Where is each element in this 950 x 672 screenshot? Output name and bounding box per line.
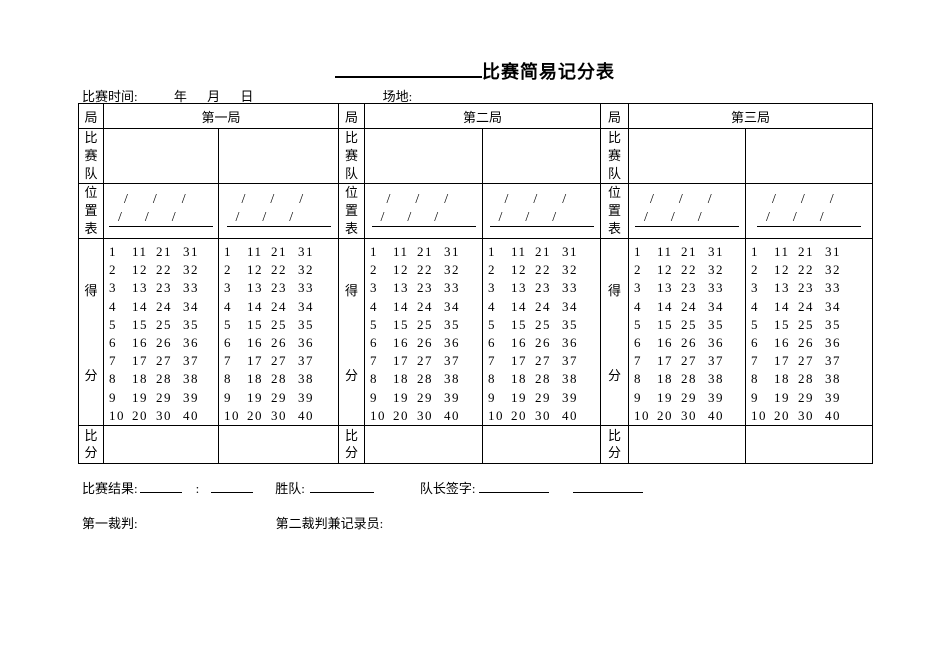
team-name-cell [629,129,746,184]
game-header-row: 局 第一局 局 第二局 局 第三局 [79,104,873,129]
final-score-cell [219,425,339,463]
referee-line: 第一裁判:第二裁判兼记录员: [82,513,383,532]
final-score-row: 比分 比分 比分 [79,425,873,463]
positions-row: 位置表 ////// ////// 位置表 ////// ////// 位置表 … [79,184,873,239]
game-2-title: 第二局 [365,104,601,129]
score-label: 得分 [79,239,104,426]
team-name-cell [746,129,873,184]
game-1-title: 第一局 [104,104,339,129]
team-name-cell [483,129,601,184]
title-text: 比赛简易记分表 [482,62,615,82]
score-table: 局 第一局 局 第二局 局 第三局 比赛队 比赛队 比赛队 位置表 //////… [78,103,873,464]
score-number-grid: 1112131212223231323334142434515253561626… [483,239,600,425]
captain-blank-2 [573,478,643,493]
result-blank-2 [211,478,253,493]
positions-label: 位置表 [79,184,104,239]
score-grid-cell: 1112131212223231323334142434515253561626… [483,239,601,426]
position-diagram: ////// [372,190,476,227]
positions-label: 位置表 [601,184,629,239]
position-diagram: ////// [227,190,331,227]
position-cell: ////// [365,184,483,239]
scoresheet-page: 比赛简易记分表 比赛时间: 年 月 日 场地: 局 第一局 局 第二局 局 第三… [0,0,950,672]
winner-label: 胜队: [275,481,305,496]
match-time-label: 比赛时间: [82,89,138,104]
score-grid-cell: 1112131212223231323334142434515253561626… [746,239,873,426]
positions-label: 位置表 [339,184,365,239]
score-number-grid: 1112131212223231323334142434515253561626… [746,239,872,425]
captain-blank-1 [479,478,549,493]
position-cell: ////// [219,184,339,239]
position-cell: ////// [104,184,219,239]
team-name-cell [365,129,483,184]
result-colon: : [196,481,200,496]
game-col-label: 局 [339,104,365,129]
month-label: 月 [207,89,220,104]
score-number-grid: 1112131212223231323334142434515253561626… [104,239,218,425]
score-number-grid: 1112131212223231323334142434515253561626… [219,239,338,425]
game-col-label: 局 [601,104,629,129]
final-score-cell [483,425,601,463]
day-label: 日 [240,89,253,104]
teams-label: 比赛队 [601,129,629,184]
position-cell: ////// [629,184,746,239]
referee2-label: 第二裁判兼记录员: [276,516,384,531]
score-number-grid: 1112131212223231323334142434515253561626… [629,239,745,425]
teams-label: 比赛队 [339,129,365,184]
score-grid-cell: 1112131212223231323334142434515253561626… [219,239,339,426]
final-score-cell [365,425,483,463]
venue-label: 场地: [383,89,413,104]
game-col-label: 局 [79,104,104,129]
score-grid-cell: 1112131212223231323334142434515253561626… [365,239,483,426]
result-blank-1 [140,478,182,493]
teams-row: 比赛队 比赛队 比赛队 [79,129,873,184]
final-score-cell [746,425,873,463]
referee1-label: 第一裁判: [82,516,138,531]
score-label: 得分 [339,239,365,426]
score-grid-cell: 1112131212223231323334142434515253561626… [629,239,746,426]
teams-label: 比赛队 [79,129,104,184]
score-label: 得分 [601,239,629,426]
title-blank-line [335,60,482,78]
captain-label: 队长签字: [420,481,476,496]
score-grid-cell: 1112131212223231323334142434515253561626… [104,239,219,426]
position-diagram: ////// [490,190,594,227]
position-diagram: ////// [635,190,739,227]
position-diagram: ////// [109,190,213,227]
position-cell: ////// [746,184,873,239]
final-score-label: 比分 [79,425,104,463]
score-number-grid: 1112131212223231323334142434515253561626… [365,239,482,425]
final-score-label: 比分 [339,425,365,463]
final-score-label: 比分 [601,425,629,463]
result-line: 比赛结果::胜队:队长签字: [82,478,643,497]
year-label: 年 [174,89,187,104]
result-label: 比赛结果: [82,481,138,496]
game-3-title: 第三局 [629,104,873,129]
page-title: 比赛简易记分表 [0,58,950,84]
final-score-cell [104,425,219,463]
winner-blank [310,478,374,493]
position-diagram: ////// [757,190,861,227]
team-name-cell [219,129,339,184]
team-name-cell [104,129,219,184]
position-cell: ////// [483,184,601,239]
final-score-cell [629,425,746,463]
score-row: 得分 1112131212223231323334142434515253561… [79,239,873,426]
